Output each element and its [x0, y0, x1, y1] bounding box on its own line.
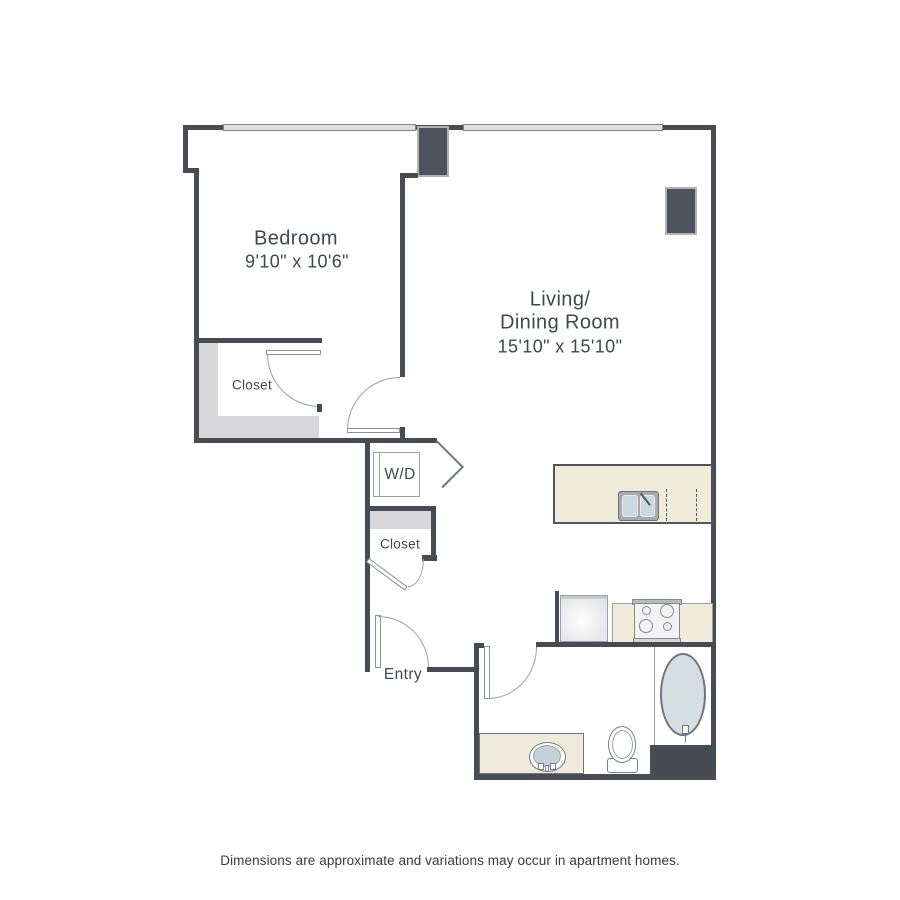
- living-dims: 15'10" x 15'10": [498, 337, 623, 358]
- wall-right: [711, 125, 716, 780]
- wall-bedroom-closet-stub: [317, 404, 322, 413]
- bedroom-closet-shading-bottom: [218, 416, 319, 438]
- disclaimer-text: Dimensions are approximate and variation…: [0, 853, 900, 868]
- burner-top-left: [642, 606, 651, 615]
- floor-plan: W/D Closet Entry: [0, 0, 900, 900]
- wall-entry-bottom: [427, 667, 479, 672]
- hall-closet-label: Closet: [380, 536, 420, 551]
- living-window: [463, 124, 663, 132]
- bedroom-window: [223, 124, 416, 132]
- hall-closet-door-leaf: [366, 558, 407, 590]
- wall-bedroom-living: [400, 173, 405, 378]
- burner-bottom-left: [639, 619, 653, 633]
- wall-hall-closet-stub: [422, 555, 437, 561]
- bedroom-closet-shading-left: [199, 343, 218, 438]
- kitchen-sink-basin-left: [622, 495, 638, 517]
- tub-faucet: [682, 725, 689, 734]
- kitchen-sink-basin-right: [640, 495, 655, 517]
- wall-left-upper: [183, 125, 188, 173]
- bath-sink-handle-right: [550, 763, 556, 770]
- bedroom-door-swing: [347, 377, 400, 430]
- entry-door-swing: [378, 616, 430, 668]
- living-label-line1: Living/: [530, 289, 591, 312]
- living-label-line2: Dining Room: [500, 312, 620, 335]
- toilet-bowl-inner: [612, 730, 633, 759]
- bathroom-door-swing: [488, 647, 537, 699]
- bathtub: [660, 653, 706, 736]
- tub-alcove-line: [654, 647, 655, 746]
- washer-dryer-door-line: [379, 453, 380, 497]
- hall-closet-door-swing: [408, 559, 424, 588]
- burner-top-right: [660, 604, 674, 618]
- bedroom-dims: 9'10" x 10'6": [245, 252, 349, 273]
- bedroom-closet-label: Closet: [232, 377, 272, 392]
- entry-label: Entry: [384, 666, 422, 684]
- refrigerator: [560, 595, 608, 642]
- bedroom-closet-door-swing: [267, 354, 320, 407]
- bath-sink-spout: [545, 765, 549, 772]
- wall-bedroom-door-stub: [400, 427, 405, 443]
- dishwasher-dash-right: [696, 489, 697, 521]
- tub-faucet-spout: [685, 734, 687, 742]
- wall-hall-west: [365, 440, 370, 672]
- angled-wall-lower: [441, 466, 464, 489]
- wall-kitchen-bottom: [536, 642, 717, 647]
- wall-hall-closet-right: [431, 506, 436, 561]
- wall-kitchen-bottom-left: [474, 643, 484, 648]
- bedroom-label: Bedroom: [254, 228, 338, 251]
- column-top: [417, 126, 449, 177]
- hall-closet-shading: [370, 511, 432, 529]
- column-living: [665, 187, 697, 235]
- dishwasher-dash-left: [666, 489, 667, 521]
- tub-deck: [650, 745, 716, 779]
- angled-wall-upper: [435, 440, 463, 468]
- burner-bottom-right: [663, 622, 672, 631]
- wall-fridge-stub: [555, 591, 559, 643]
- refrigerator-top-bar: [561, 596, 607, 599]
- bath-sink-handle-left: [538, 763, 544, 770]
- washer-dryer-label: W/D: [384, 466, 415, 484]
